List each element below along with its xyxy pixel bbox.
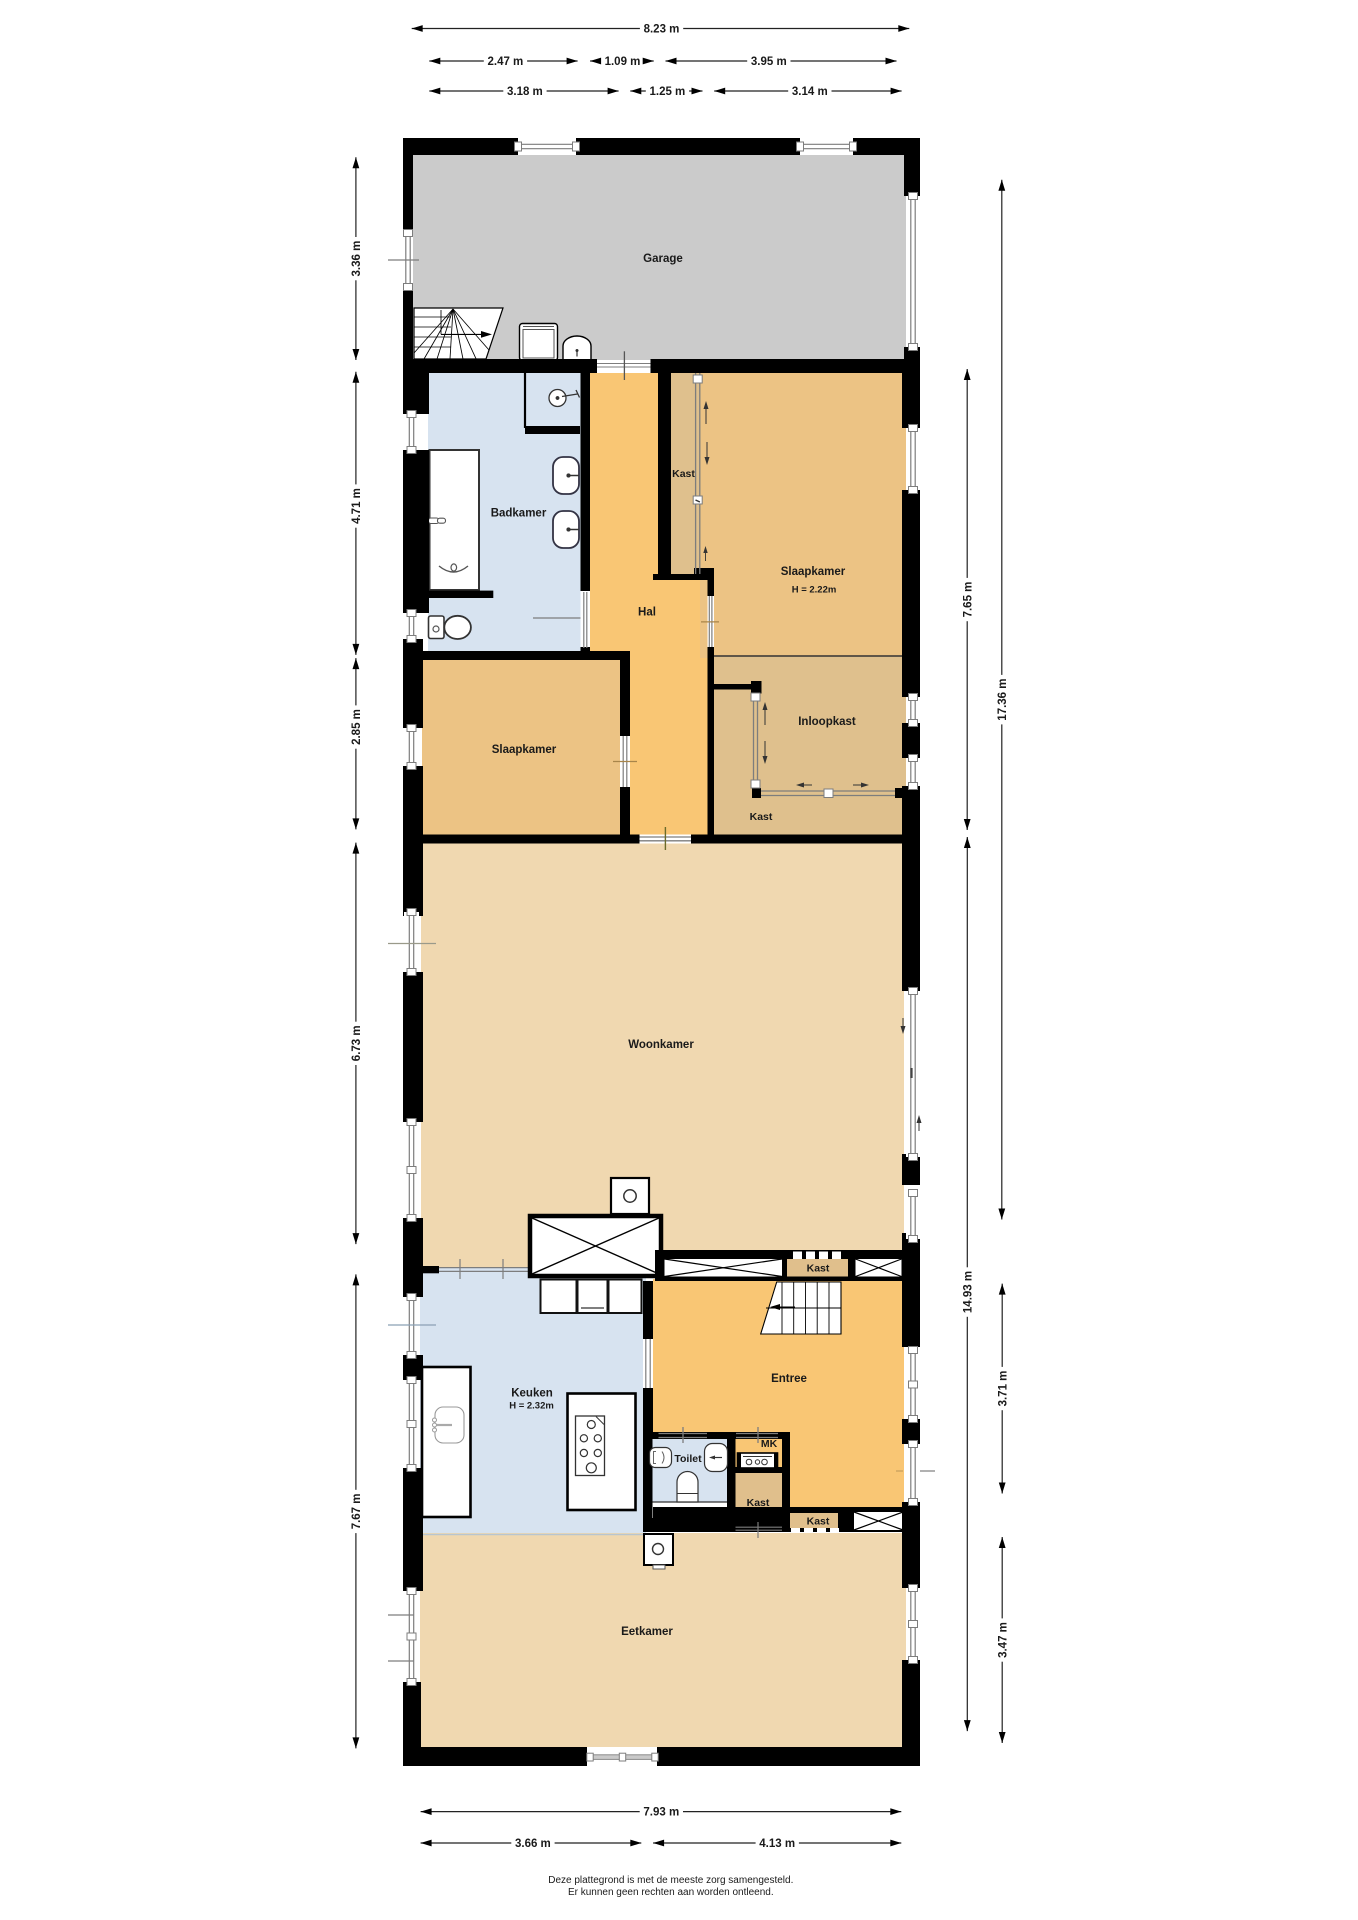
svg-text:4.71 m: 4.71 m — [351, 488, 363, 524]
svg-text:3.14 m: 3.14 m — [792, 86, 828, 98]
svg-text:Slaapkamer: Slaapkamer — [781, 566, 846, 578]
svg-text:Eetkamer: Eetkamer — [621, 1626, 673, 1638]
svg-text:14.93 m: 14.93 m — [962, 1271, 974, 1313]
svg-text:7.65 m: 7.65 m — [962, 582, 974, 618]
svg-text:H = 2.22m: H = 2.22m — [792, 585, 837, 596]
svg-text:3.18 m: 3.18 m — [507, 86, 543, 98]
svg-text:Kast: Kast — [672, 468, 695, 480]
svg-text:3.95 m: 3.95 m — [751, 56, 787, 68]
svg-text:Garage: Garage — [643, 253, 683, 265]
svg-text:Er kunnen geen rechten aan wor: Er kunnen geen rechten aan worden ontlee… — [568, 1887, 774, 1898]
svg-text:Kast: Kast — [747, 1497, 770, 1509]
svg-text:Entree: Entree — [771, 1373, 807, 1385]
svg-text:Toilet: Toilet — [674, 1453, 702, 1465]
svg-text:Kast: Kast — [807, 1263, 830, 1275]
svg-text:Slaapkamer: Slaapkamer — [492, 744, 557, 756]
svg-text:3.47 m: 3.47 m — [997, 1622, 1009, 1658]
svg-text:7.67 m: 7.67 m — [351, 1493, 363, 1529]
svg-text:Woonkamer: Woonkamer — [628, 1039, 694, 1051]
svg-text:H = 2.32m: H = 2.32m — [509, 1401, 554, 1412]
svg-text:8.23 m: 8.23 m — [644, 24, 680, 36]
svg-text:1.25 m: 1.25 m — [649, 86, 685, 98]
svg-text:7.93 m: 7.93 m — [643, 1807, 679, 1819]
svg-text:Hal: Hal — [638, 607, 656, 619]
svg-text:2.85 m: 2.85 m — [351, 709, 363, 745]
svg-text:6.73 m: 6.73 m — [351, 1025, 363, 1061]
svg-text:4.13 m: 4.13 m — [759, 1838, 795, 1850]
svg-text:3.66 m: 3.66 m — [515, 1838, 551, 1850]
svg-text:Deze plattegrond is met de mee: Deze plattegrond is met de meeste zorg s… — [548, 1875, 793, 1886]
svg-text:3.36 m: 3.36 m — [351, 241, 363, 277]
svg-text:Inloopkast: Inloopkast — [798, 716, 856, 728]
svg-text:Kast: Kast — [807, 1516, 830, 1528]
svg-text:3.71 m: 3.71 m — [997, 1371, 1009, 1407]
svg-text:Keuken: Keuken — [511, 1388, 553, 1400]
svg-text:2.47 m: 2.47 m — [487, 56, 523, 68]
svg-text:17.36 m: 17.36 m — [997, 678, 1009, 720]
svg-text:Kast: Kast — [750, 811, 773, 823]
svg-text:Badkamer: Badkamer — [491, 508, 547, 520]
svg-text:MK: MK — [761, 1438, 778, 1450]
svg-text:1.09 m: 1.09 m — [605, 56, 641, 68]
